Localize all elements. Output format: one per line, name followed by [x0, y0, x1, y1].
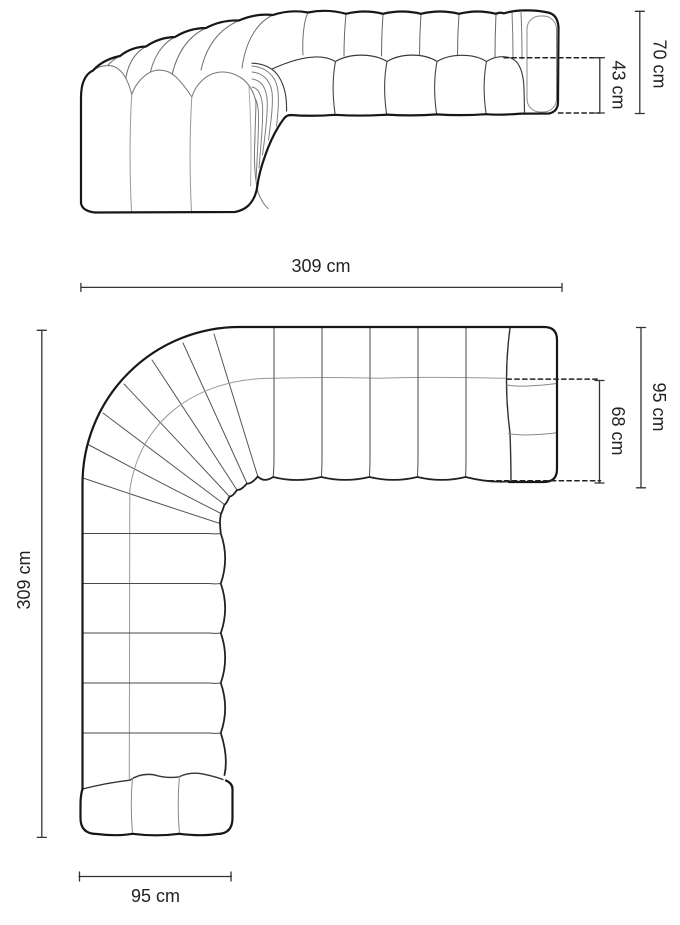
svg-text:95 cm: 95 cm — [131, 886, 180, 906]
svg-text:68 cm: 68 cm — [608, 406, 628, 455]
svg-text:70 cm: 70 cm — [649, 39, 669, 88]
svg-text:309 cm: 309 cm — [291, 256, 350, 276]
svg-text:95 cm: 95 cm — [649, 382, 669, 431]
svg-text:43 cm: 43 cm — [608, 60, 628, 109]
svg-text:309 cm: 309 cm — [14, 550, 34, 609]
